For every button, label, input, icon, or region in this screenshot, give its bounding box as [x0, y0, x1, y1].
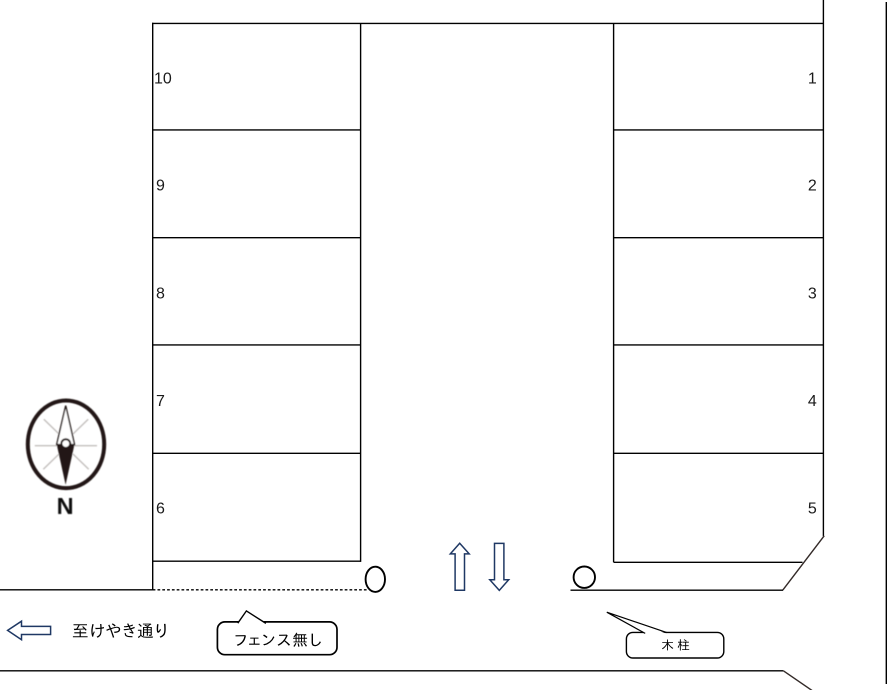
svg-text:9: 9 [156, 178, 165, 195]
svg-text:3: 3 [808, 285, 817, 302]
svg-text:1: 1 [808, 70, 817, 87]
svg-text:2: 2 [808, 178, 817, 195]
svg-text:10: 10 [154, 70, 172, 87]
svg-text:6: 6 [156, 501, 165, 518]
svg-text:N: N [57, 493, 74, 519]
svg-text:5: 5 [808, 501, 817, 518]
svg-text:8: 8 [156, 285, 165, 302]
svg-text:7: 7 [156, 393, 165, 410]
svg-text:4: 4 [808, 393, 817, 410]
